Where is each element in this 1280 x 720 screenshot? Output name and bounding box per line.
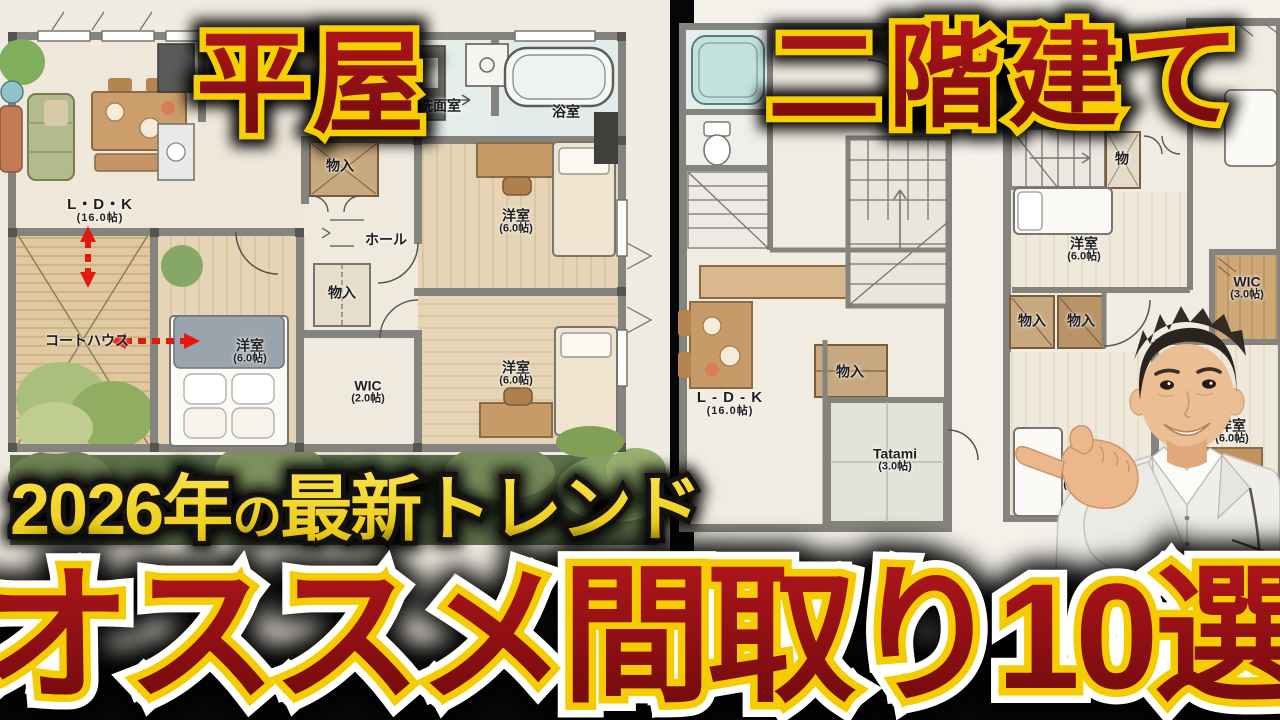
stairs-1f-mid: [848, 138, 948, 306]
thumbnail-stage: L・D・K (16.0帖) 洗面室 浴室 物入 洋室 (6.0帖) ホール 物入…: [0, 0, 1280, 720]
bottom-shadow-band: [0, 648, 1280, 720]
stairs-1f-left: [688, 172, 768, 248]
room-label-bedroom-se: 洋室 (6.0帖): [499, 361, 533, 388]
garden-bushes: [8, 440, 670, 545]
room-label-storage-small-2f: 物: [1115, 151, 1129, 166]
plan-1f: [678, 27, 978, 528]
room-label-courtyard: コートハウス: [45, 333, 129, 348]
room-label-hall: ホール: [365, 232, 407, 247]
room-label-ldk: L・D・K (16.0帖): [67, 197, 133, 225]
room-label-storage-1f: 物入: [836, 364, 864, 379]
room-label-bedroom-ne: 洋室 (6.0帖): [499, 209, 533, 236]
stairs-2f: [1010, 128, 1106, 188]
room-label-bathroom: 浴室: [552, 104, 580, 119]
room-label-storage-mid: 物入: [328, 285, 356, 300]
room-label-tatami: Tatami (3.0帖): [873, 447, 917, 474]
presenter-photo: [980, 290, 1280, 590]
room-label-wic: WIC (2.0帖): [351, 379, 385, 406]
room-label-storage-top: 物入: [326, 158, 354, 173]
room-label-bedroom-center: 洋室 (6.0帖): [233, 339, 267, 366]
presenter-head: [1130, 306, 1246, 468]
room-label-ldk-1f: L - D - K (16.0帖): [697, 390, 763, 418]
room-label-bedroom-top-2f: 洋室 (6.0帖): [1067, 237, 1101, 264]
room-label-washroom: 洗面室: [419, 98, 461, 113]
